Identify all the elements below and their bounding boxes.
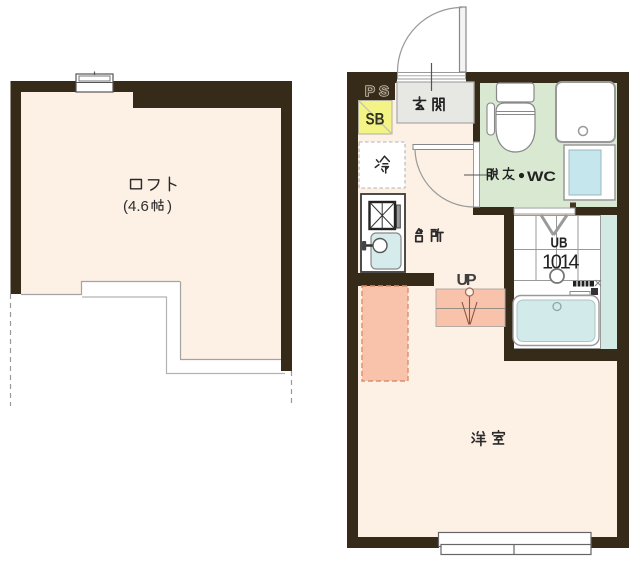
svg-text:WC: WC <box>527 168 556 184</box>
svg-text:UP: UP <box>457 272 477 289</box>
svg-text:): ) <box>167 198 172 215</box>
svg-text:UB: UB <box>551 235 568 252</box>
svg-text:(4.6: (4.6 <box>123 198 149 215</box>
svg-text:SB: SB <box>366 110 385 129</box>
